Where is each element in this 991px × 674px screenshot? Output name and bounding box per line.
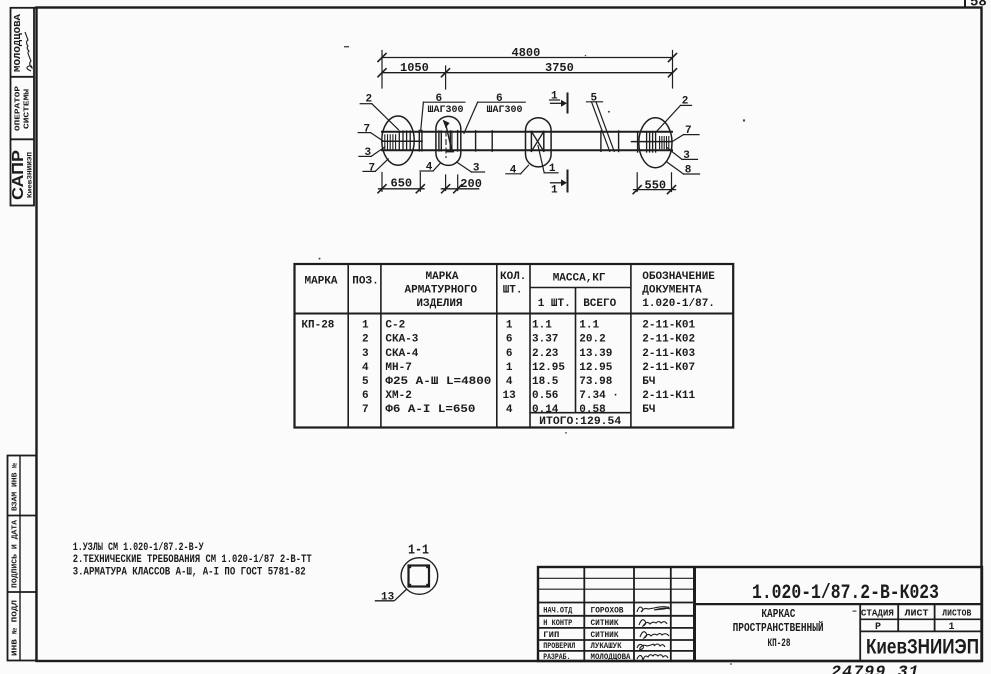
svg-text:ШАГ300: ШАГ300: [428, 104, 464, 116]
svg-text:СИТНИК: СИТНИК: [591, 619, 619, 628]
svg-text:ШТ.: ШТ.: [503, 285, 523, 297]
svg-text:КиевЗНИИЭП: КиевЗНИИЭП: [866, 635, 979, 659]
svg-text:4: 4: [506, 376, 513, 388]
svg-text:ПОДПИСЬ И ДАТА: ПОДПИСЬ И ДАТА: [12, 519, 20, 588]
svg-text:ВСЕГО: ВСЕГО: [583, 298, 616, 310]
svg-text:58: 58: [970, 0, 987, 11]
svg-text:2-11-К11: 2-11-К11: [642, 390, 695, 402]
svg-text:0.58: 0.58: [579, 404, 606, 416]
svg-text:200: 200: [460, 177, 482, 191]
svg-text:КП-28: КП-28: [768, 638, 791, 650]
svg-text:6: 6: [496, 93, 503, 105]
svg-text:13: 13: [503, 390, 517, 402]
svg-text:1: 1: [949, 622, 955, 633]
svg-text:18.5: 18.5: [532, 376, 559, 388]
svg-text:1.020-1/87.: 1.020-1/87.: [642, 298, 715, 310]
svg-text:СКА-3: СКА-3: [385, 334, 418, 346]
svg-text:4: 4: [426, 162, 433, 174]
svg-text:КОЛ.: КОЛ.: [500, 271, 526, 283]
svg-text:КиевЗНИИЭП: КиевЗНИИЭП: [27, 152, 34, 198]
svg-text:СКА-4: СКА-4: [385, 348, 418, 360]
svg-text:7: 7: [685, 125, 692, 137]
svg-text:МОЛОДЦОВА: МОЛОДЦОВА: [591, 653, 631, 662]
svg-text:1.1: 1.1: [532, 320, 552, 332]
svg-text:1050: 1050: [400, 61, 429, 75]
svg-text:2-11-К02: 2-11-К02: [642, 334, 695, 346]
svg-text:ИЗДЕЛИЯ: ИЗДЕЛИЯ: [416, 298, 462, 310]
svg-text:ШАГ300: ШАГ300: [487, 104, 523, 116]
svg-text:4: 4: [362, 362, 369, 374]
svg-text:МАССА,КГ: МАССА,КГ: [553, 273, 606, 285]
svg-text:МОЛОДЦОВА: МОЛОДЦОВА: [12, 14, 23, 72]
svg-text:13: 13: [381, 592, 395, 604]
svg-text:ИТОГО:129.54: ИТОГО:129.54: [539, 416, 621, 428]
svg-text:С-2: С-2: [385, 320, 405, 332]
svg-text:СИТНИК: СИТНИК: [591, 631, 619, 640]
svg-text:2-11-К07: 2-11-К07: [642, 362, 695, 374]
svg-text:2.ТЕХНИЧЕСКИЕ ТРЕБОВАНИЯ СМ 1.: 2.ТЕХНИЧЕСКИЕ ТРЕБОВАНИЯ СМ 1.020-1/87 2…: [73, 554, 312, 566]
svg-text:1: 1: [506, 320, 513, 332]
svg-text:6: 6: [506, 348, 513, 360]
svg-text:3.АРМАТУРА КЛАССОВ А-Ш, А-I ПО: 3.АРМАТУРА КЛАССОВ А-Ш, А-I ПО ГОСТ 5781…: [73, 567, 306, 579]
svg-text:САПР: САПР: [10, 150, 27, 200]
svg-text:1.1: 1.1: [579, 320, 599, 332]
svg-text:7: 7: [369, 162, 376, 174]
svg-text:Ф6 А-I L=650: Ф6 А-I L=650: [385, 404, 475, 416]
svg-text:1.УЗЛЫ СМ 1.020-1/87.2-В-У: 1.УЗЛЫ СМ 1.020-1/87.2-В-У: [73, 542, 204, 554]
svg-text:Р: Р: [875, 622, 881, 633]
svg-text:73.98: 73.98: [579, 376, 612, 388]
svg-text:Н КОНТР: Н КОНТР: [543, 619, 572, 628]
svg-text:2-11-К03: 2-11-К03: [642, 348, 695, 360]
svg-text:ИНВ № ПОДЛ: ИНВ № ПОДЛ: [12, 600, 20, 656]
svg-text:2: 2: [362, 334, 369, 346]
svg-text:КАРКАС: КАРКАС: [761, 607, 795, 621]
svg-text:550: 550: [645, 178, 667, 192]
svg-text:1: 1: [551, 91, 558, 103]
svg-text:МАРКА: МАРКА: [426, 271, 459, 283]
svg-text:ЛИСТОВ: ЛИСТОВ: [942, 608, 971, 619]
svg-text:7.34 ·: 7.34 ·: [579, 390, 619, 402]
svg-text:0.56: 0.56: [532, 390, 558, 402]
svg-text:12.95: 12.95: [579, 362, 612, 374]
svg-text:1 ШТ.: 1 ШТ.: [538, 298, 571, 310]
svg-text:4: 4: [510, 164, 517, 176]
svg-text:6: 6: [362, 390, 369, 402]
svg-text:КП-28: КП-28: [301, 320, 334, 332]
svg-text:СИСТЕМЫ: СИСТЕМЫ: [24, 89, 32, 129]
svg-text:3750: 3750: [545, 61, 574, 75]
svg-text:АРМАТУРНОГО: АРМАТУРНОГО: [405, 285, 478, 297]
svg-text:5: 5: [362, 376, 369, 388]
svg-text:3: 3: [683, 150, 690, 162]
svg-text:1-1: 1-1: [408, 543, 429, 559]
svg-text:ВЗАМ ИНВ №: ВЗАМ ИНВ №: [12, 462, 20, 511]
svg-text:1.020-1/87.2-В-К023: 1.020-1/87.2-В-К023: [752, 582, 939, 605]
svg-text:ПРОСТРАНСТВЕННЫЙ: ПРОСТРАНСТВЕННЫЙ: [733, 620, 824, 635]
svg-text:24799 31: 24799 31: [831, 663, 920, 674]
svg-text:6: 6: [506, 334, 513, 346]
svg-text:ЛУКАШУК: ЛУКАШУК: [591, 642, 622, 651]
svg-text:ГИП: ГИП: [543, 631, 559, 640]
svg-text:СТАДИЯ: СТАДИЯ: [861, 608, 894, 619]
svg-text:ЛИСТ: ЛИСТ: [905, 608, 929, 619]
svg-text:13.39: 13.39: [579, 348, 612, 360]
svg-text:ПОЗ.: ПОЗ.: [352, 276, 378, 288]
svg-text:БЧ: БЧ: [642, 376, 655, 388]
svg-text:7: 7: [364, 123, 371, 135]
svg-text:20.2: 20.2: [579, 334, 605, 346]
svg-text:4800: 4800: [512, 46, 541, 60]
svg-text:2.23: 2.23: [532, 348, 559, 360]
svg-text:3: 3: [473, 163, 480, 175]
svg-text:ПРОВЕРИЛ: ПРОВЕРИЛ: [543, 642, 575, 651]
svg-text:4: 4: [506, 404, 513, 416]
svg-text:ХМ-2: ХМ-2: [385, 390, 411, 402]
svg-text:12.95: 12.95: [532, 362, 565, 374]
svg-text:1: 1: [362, 320, 369, 332]
svg-text:3: 3: [365, 147, 372, 159]
svg-text:НАЧ.ОТД: НАЧ.ОТД: [543, 607, 572, 616]
svg-text:1: 1: [506, 362, 513, 374]
svg-text:7: 7: [362, 404, 369, 416]
svg-text:ОБОЗНАЧЕНИЕ: ОБОЗНАЧЕНИЕ: [642, 271, 715, 283]
svg-text:ГОРОХОВ: ГОРОХОВ: [591, 607, 624, 616]
svg-text:650: 650: [391, 177, 413, 191]
svg-text:8: 8: [685, 165, 692, 177]
svg-text:2-11-К01: 2-11-К01: [642, 320, 695, 332]
svg-text:МН-7: МН-7: [385, 362, 411, 374]
svg-text:Ф25 А-Ш L=4800: Ф25 А-Ш L=4800: [385, 376, 491, 388]
svg-text:0.14: 0.14: [532, 404, 559, 416]
svg-text:6: 6: [436, 93, 443, 105]
svg-text:ДОКУМЕНТА: ДОКУМЕНТА: [642, 285, 702, 297]
svg-text:1: 1: [551, 184, 558, 196]
svg-text:3.37: 3.37: [532, 334, 558, 346]
svg-text:ОПЕРАТОР: ОПЕРАТОР: [15, 86, 23, 131]
svg-text:МАРКА: МАРКА: [305, 276, 338, 288]
svg-text:БЧ: БЧ: [642, 404, 655, 416]
svg-text:3: 3: [362, 348, 369, 360]
svg-text:РАЗРАБ.: РАЗРАБ.: [543, 653, 570, 662]
